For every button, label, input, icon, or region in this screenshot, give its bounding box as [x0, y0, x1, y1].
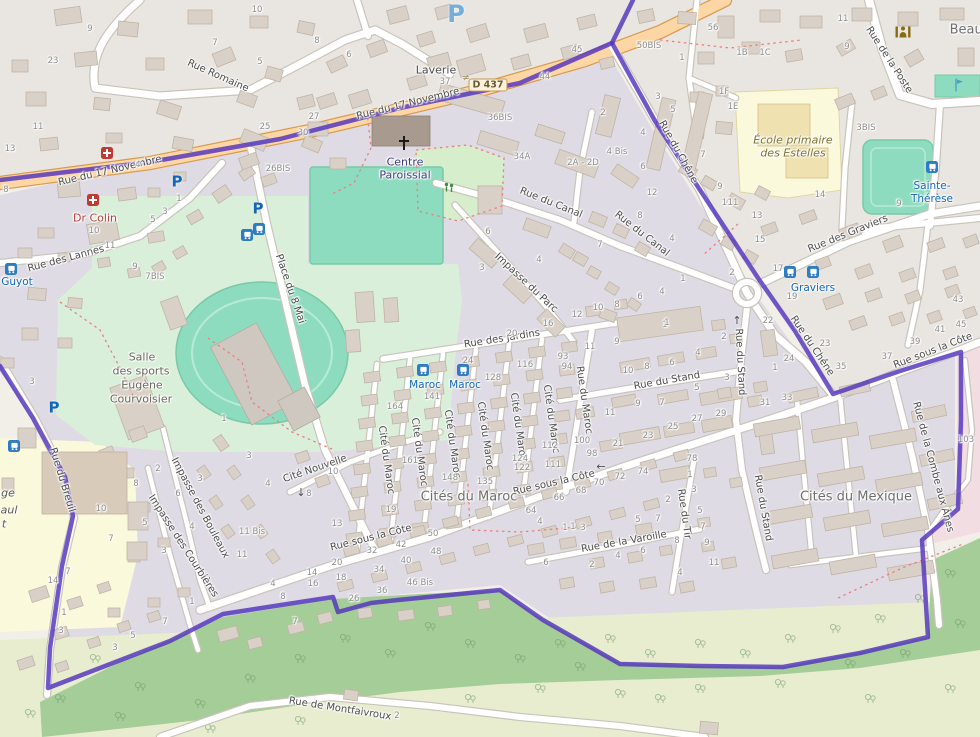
house-number: 8 [306, 489, 311, 499]
house-number: 116 [517, 360, 533, 370]
house-number: 2 [589, 560, 594, 570]
transit-stop-label: Maroc [449, 379, 481, 391]
house-number: 45 [572, 45, 583, 55]
house-number: 8 [280, 592, 285, 602]
house-number: 42 [396, 540, 407, 550]
house-number: 111 [545, 460, 561, 470]
house-number: 66 [554, 493, 565, 503]
house-number: 36BIS [488, 113, 513, 123]
house-number: 3 [655, 92, 660, 102]
house-number: 11 [585, 342, 596, 352]
poi-label: des sports [113, 365, 170, 378]
house-number: 41 [935, 325, 946, 335]
house-number: 7 [65, 567, 70, 577]
house-number: 4 [695, 348, 700, 358]
poi-label: ge [1, 487, 15, 500]
house-number: 30 [298, 128, 309, 138]
house-number: 164 [387, 402, 403, 412]
bus-icon [241, 229, 253, 241]
house-number: 9 [704, 538, 709, 548]
house-number: 13 [5, 144, 16, 154]
house-number: 43 [953, 295, 964, 305]
house-number: 5 [142, 518, 147, 528]
house-number: 4 Bis [607, 147, 628, 157]
house-number: 93 [558, 352, 569, 362]
house-number: 26BIS [266, 164, 291, 174]
parking-icon: P [447, 2, 465, 26]
house-number: 6 [640, 546, 645, 556]
house-number: 3 [691, 485, 696, 495]
street-label: Cité du Maroc [409, 417, 430, 487]
house-number: 9 [132, 262, 137, 272]
house-number: 94 [562, 362, 573, 372]
house-number: 35 [836, 362, 847, 372]
house-number: 7 [659, 398, 664, 408]
house-number: 23 [48, 56, 59, 66]
poi-label: Centre [387, 156, 424, 169]
house-number: 45 [956, 320, 967, 330]
house-number: 9 [896, 199, 901, 209]
house-number: 20 [332, 558, 343, 568]
house-number: 33 [782, 393, 793, 403]
arrow-left-icon: ← [596, 465, 605, 467]
house-number: 4 [640, 128, 645, 138]
house-number: 39 [910, 337, 921, 347]
house-number: 24 [784, 354, 795, 364]
house-number: 6 [543, 558, 548, 568]
house-number: 34 [374, 565, 385, 575]
house-number: 9 [87, 24, 92, 34]
street-label: Rue des Jardins [463, 328, 541, 351]
house-number: 74 [638, 467, 649, 477]
house-number: 10 [96, 504, 107, 514]
house-number: 13 [752, 211, 763, 221]
house-number: 10 [89, 226, 100, 236]
house-number: 7 [292, 617, 297, 627]
street-label: Rue du Maroc [574, 365, 594, 434]
house-number: 36 [377, 586, 388, 596]
house-number: 1 [664, 318, 669, 328]
street-label: Rue du Canal [518, 185, 584, 220]
street-label: Rue du Stand [752, 474, 774, 542]
gate-icon: ≠ [462, 76, 470, 79]
house-number: 3 [479, 263, 484, 273]
bus-icon [926, 161, 938, 173]
house-number: 4 [537, 517, 542, 527]
house-number: 18 [336, 573, 347, 583]
house-number: 50 [428, 529, 439, 539]
street-label: Cité du Maroc [475, 401, 496, 471]
house-number: 21 [613, 439, 624, 449]
house-number: 161 [402, 456, 418, 466]
house-number: 1 [562, 523, 567, 533]
medical-icon [87, 194, 99, 206]
transit-stop-label: Sainte- [913, 180, 950, 192]
street-label: Cité du Maroc [376, 425, 397, 495]
house-number: 112 [542, 441, 558, 451]
street-label: Cité du Maroc [442, 409, 463, 479]
house-number: 103 [958, 435, 974, 445]
house-number: 17 [773, 264, 784, 274]
poi-label: t [2, 518, 6, 531]
house-number: 1 [772, 363, 777, 373]
house-number: 2 [729, 268, 734, 278]
cross-icon [397, 135, 411, 151]
street-label: Rue des Graviers [806, 213, 889, 255]
poi-label: Paroissial [379, 169, 430, 182]
house-number: 141 [424, 392, 440, 402]
house-number: 1 [680, 274, 685, 284]
transit-stop-label: Graviers [791, 282, 835, 294]
house-number: 2 [394, 711, 399, 721]
house-number: 9 [717, 182, 722, 192]
house-number: 3 [580, 523, 585, 533]
house-number: 4 [270, 579, 275, 589]
parking-icon: P [49, 401, 60, 416]
house-number: 14 [48, 576, 59, 586]
house-number: 3 [197, 474, 202, 484]
street-label: Rue sous la Côte [892, 331, 974, 371]
poi-label: Laverie [416, 64, 457, 77]
house-number: 3 [724, 373, 729, 383]
house-number: 1 [176, 194, 181, 204]
transit-stop-label: Guyot [1, 276, 33, 288]
bus-icon [807, 266, 819, 278]
house-number: 7 [212, 38, 217, 48]
house-number: 128 [485, 373, 501, 383]
house-number: 5 [694, 383, 699, 393]
house-number: 8 [614, 300, 619, 310]
house-number: 32 [367, 546, 378, 556]
house-number: 31 [760, 398, 771, 408]
house-number: 48 [431, 547, 442, 557]
house-number: 7 [108, 534, 113, 544]
house-number: 2 [600, 108, 605, 118]
house-number: 22 [763, 316, 774, 326]
house-number: 44 [540, 72, 551, 82]
house-number: 11 [33, 122, 44, 132]
social-icon [895, 24, 912, 41]
house-number: 148 [442, 473, 458, 483]
bus-icon [417, 364, 429, 376]
arrow-down-icon: ↓ [296, 491, 305, 493]
street-label: Place du 8 Mai [273, 253, 307, 325]
house-number: 40 [401, 556, 412, 566]
house-number: 8 [674, 536, 679, 546]
house-number: 3 [112, 643, 117, 653]
house-number: 11 [105, 241, 116, 251]
house-number: 4 [615, 551, 620, 561]
poi-label: aul [1, 504, 18, 517]
poi-label: Salle [129, 351, 156, 364]
street-label: Impasse des Courbières [146, 493, 221, 600]
house-number: 64 [526, 506, 537, 516]
house-number: 4 [135, 160, 140, 170]
poi-label: Dr Colin [73, 212, 117, 225]
house-number: 11 [728, 198, 739, 208]
house-number: 10 [328, 467, 339, 477]
house-number: 12 [572, 310, 583, 320]
house-number: 5 [130, 631, 135, 641]
house-number: 9 [635, 399, 640, 409]
house-number: 3 [162, 207, 167, 217]
house-number: 7 [597, 240, 602, 250]
house-number: 3 [246, 451, 251, 461]
house-number: 7 [700, 150, 705, 160]
house-number: 70 [594, 478, 605, 488]
street-label: Rue des Lannes [27, 243, 106, 274]
street-label: Rue de la Varoille [580, 529, 667, 555]
house-number: 135 [477, 477, 493, 487]
house-number: 4 [669, 234, 674, 244]
poi-label: Courvoisier [110, 393, 172, 406]
poi-label: des Estelles [760, 147, 825, 160]
house-number: 10 [623, 366, 634, 376]
street-label: Rue du Stand [733, 328, 747, 396]
street-label: Rue du Stand [633, 370, 701, 392]
house-number: 9 [614, 337, 619, 347]
house-number: 23 [820, 339, 831, 349]
house-number: 68 [576, 486, 587, 496]
house-number: 1 [679, 53, 684, 63]
house-number: 1C [759, 48, 770, 58]
house-number: 72 [615, 472, 626, 482]
house-number: 7 [655, 514, 660, 524]
house-number: 8 [3, 185, 8, 195]
house-number: 3 [29, 377, 34, 387]
house-number: 6 [346, 50, 351, 60]
house-number: 8 [637, 211, 642, 221]
house-number: 16 [543, 319, 554, 329]
house-number: 98 [587, 449, 598, 459]
house-number: 3 [161, 546, 166, 556]
house-number: 19 [386, 505, 397, 515]
house-number: 16 [308, 579, 319, 589]
house-number: 100 [574, 436, 590, 446]
house-number: 11 Bis [239, 527, 265, 537]
house-number: 6 [640, 162, 645, 172]
house-number: 6 [485, 227, 490, 237]
place-label: Cités du Mexique [800, 490, 912, 505]
house-number: 122 [514, 463, 530, 473]
bus-icon [784, 266, 796, 278]
house-number: 20 [507, 329, 518, 339]
bus-icon [457, 364, 469, 376]
house-number: 1 [687, 470, 692, 480]
house-number: 25 [260, 122, 271, 132]
house-number: 1 [570, 522, 575, 532]
street-label: Cité du Maroc [508, 392, 529, 462]
house-number: 7BIS [145, 272, 164, 282]
street-label: Rue de Montfaivroux [288, 695, 392, 722]
road-ref-shield: D 437 [468, 79, 507, 92]
house-number: 11 [237, 550, 248, 560]
bus-icon [8, 440, 20, 452]
house-number: 14 [815, 190, 826, 200]
house-number: 4 [265, 479, 270, 489]
house-number: 10 [593, 303, 604, 313]
street-label: Rue du Chêne [656, 119, 700, 186]
bus-icon [253, 223, 265, 235]
street-label: Rue du 17 Novembre [355, 86, 460, 122]
house-number: 23 [643, 431, 654, 441]
place-label: Beaul [950, 23, 980, 38]
medical-icon [101, 147, 113, 159]
house-number: 7 [162, 617, 167, 627]
house-number: 50BIS [637, 41, 662, 51]
house-number: 56 [708, 23, 719, 33]
house-number: 3BIS [856, 123, 875, 133]
house-number: 25 [668, 422, 679, 432]
house-number: 46 Bis [407, 578, 433, 588]
house-number: 6 [669, 358, 674, 368]
house-number: 12 [647, 188, 658, 198]
poi-label: Eugène [121, 379, 162, 392]
house-number: 1B [736, 48, 747, 58]
house-number: 8 [314, 36, 319, 46]
house-number: 4 [189, 522, 194, 532]
house-number: 6 [637, 292, 642, 302]
street-label: Rue de la Combe aux Ânes [910, 401, 955, 534]
transit-stop-label: Maroc [409, 379, 441, 391]
house-number: 7 [700, 522, 705, 532]
house-number: 5 [257, 57, 262, 67]
house-number: 10 [252, 5, 263, 15]
arrow-up-icon: ↑ [732, 319, 741, 321]
house-number: 1E [728, 102, 739, 112]
poi-label: École primaire [753, 134, 832, 147]
house-number: 1 [189, 597, 194, 607]
street-label: Impasse du Parc [492, 251, 559, 315]
house-number: 14 [307, 568, 318, 578]
house-number: 4 [536, 255, 541, 265]
house-number: 2 [721, 332, 726, 342]
house-number: 15 [755, 235, 766, 245]
house-number: 26 [349, 594, 360, 604]
house-number: 9 [844, 42, 849, 52]
house-number: 2A - 2D [567, 158, 599, 168]
house-number: 27 [309, 112, 320, 122]
house-number: 11 [605, 408, 616, 418]
flag-icon [954, 79, 964, 92]
house-number: 5 [670, 105, 675, 115]
place-label: Cités du Maroc [421, 490, 518, 505]
house-number: 5 [635, 515, 640, 525]
house-number: 2 [155, 464, 160, 474]
map-canvas[interactable]: Rue RomaineRue du 17 NovembreRue du 17 N… [0, 0, 980, 737]
house-number: 29 [716, 409, 727, 419]
house-number: 3 [58, 626, 63, 636]
parking-icon: P [172, 175, 183, 190]
house-number: 1F [719, 87, 729, 97]
bus-icon [5, 263, 17, 275]
house-number: 11 [838, 14, 849, 24]
house-number: 2 [665, 495, 670, 505]
house-number: 1 [61, 608, 66, 618]
street-label: Rue du Breuil [47, 446, 77, 513]
house-number: 4 [659, 287, 664, 297]
house-number: 78 [687, 454, 698, 464]
transit-stop-label: Thérèse [911, 193, 953, 205]
house-number: 4 [677, 568, 682, 578]
parking-icon: P [253, 202, 264, 217]
house-number: 37 [882, 352, 893, 362]
house-number: 8 [644, 362, 649, 372]
house-number: 13 [332, 519, 343, 529]
house-number: 1 [221, 414, 226, 424]
playground-icon [443, 181, 456, 194]
street-label: Rue du Tir [675, 488, 693, 540]
house-number: 37 [440, 77, 451, 87]
house-number: 11 [709, 558, 720, 568]
house-number: 5 [150, 215, 155, 225]
house-number: 5 [697, 506, 702, 516]
map-label-layer: Rue RomaineRue du 17 NovembreRue du 17 N… [0, 0, 980, 737]
house-number: 34A [514, 152, 531, 162]
street-label: Rue Romaine [186, 58, 251, 95]
house-number: 27 [692, 414, 703, 424]
house-number: 6 [175, 489, 180, 499]
house-number: 8 [133, 479, 138, 489]
